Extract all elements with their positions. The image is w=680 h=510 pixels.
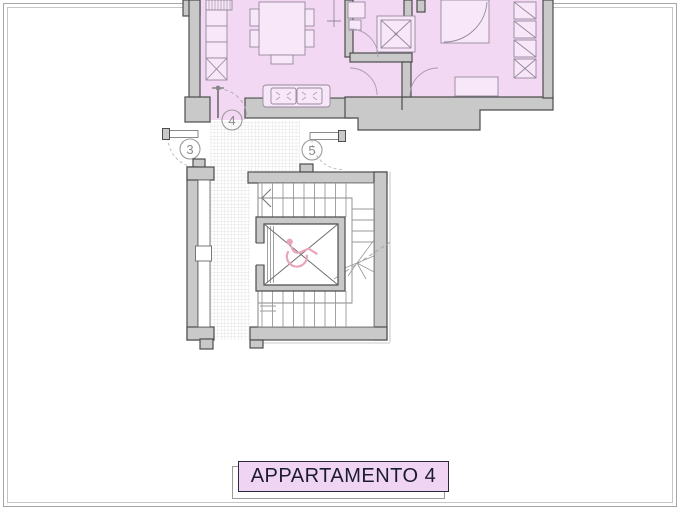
stair-interior bbox=[258, 183, 374, 327]
bedroom-door-swing bbox=[441, 0, 489, 43]
window-wall-cap-top bbox=[187, 167, 214, 180]
floor-plan-drawing: 3 4 5 bbox=[0, 0, 680, 510]
door-marker-3: 3 bbox=[180, 139, 200, 159]
wardrobe bbox=[514, 2, 536, 78]
sofa bbox=[263, 85, 330, 107]
door-marker-5-label: 5 bbox=[308, 143, 315, 158]
wall-left bbox=[189, 0, 200, 98]
wall-bath-bottom bbox=[350, 53, 412, 62]
door-marker-4-label: 4 bbox=[228, 113, 235, 128]
floor-plan-sheet: 3 4 5 bbox=[0, 0, 680, 510]
kitchen-counter bbox=[206, 10, 227, 58]
wall-bath-right-stub bbox=[404, 0, 412, 18]
stair-wall-bottom bbox=[250, 327, 387, 340]
dresser bbox=[455, 77, 498, 96]
door-marker-3-label: 3 bbox=[186, 142, 193, 157]
apartment-title: APPARTAMENTO 4 bbox=[251, 465, 437, 488]
window-frame-marker bbox=[196, 246, 212, 261]
wall-hall-bedroom-jamb bbox=[402, 62, 411, 97]
dining-table bbox=[259, 2, 305, 64]
shower bbox=[377, 16, 415, 52]
stair-wall-step bbox=[250, 340, 263, 348]
landing-window-wall bbox=[187, 159, 214, 349]
stair-wall-top bbox=[248, 172, 387, 183]
wall-entry-left-jamb bbox=[185, 97, 210, 122]
stair-wall-notch bbox=[300, 164, 313, 172]
door-marker-5: 5 bbox=[302, 140, 322, 160]
wall-right-bottom bbox=[345, 97, 553, 130]
kitchen-drainer bbox=[206, 0, 232, 10]
window-wall-cap-bottom bbox=[187, 327, 214, 340]
wall-right bbox=[543, 0, 553, 98]
elevator-door-opening bbox=[255, 243, 265, 265]
kitchen-appliance bbox=[206, 58, 227, 80]
wall-bedroom-stub bbox=[417, 0, 425, 12]
stair-wall-right bbox=[374, 172, 387, 340]
wall-tab-bottom bbox=[200, 339, 213, 349]
title-box: APPARTAMENTO 4 bbox=[238, 461, 449, 492]
